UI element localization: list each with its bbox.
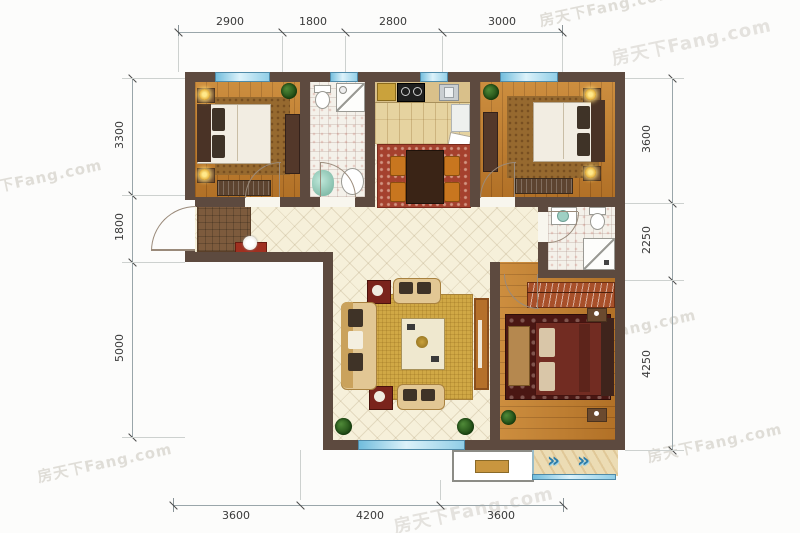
bed-headboard <box>591 100 605 162</box>
floorplan-image: 房天下Fang.com 房天下Fang.com 房天下Fang.com 房天下F… <box>0 0 800 533</box>
pillow <box>539 328 555 357</box>
witness-line <box>625 203 684 204</box>
dim-label-bottom-2: 4200 <box>350 510 390 522</box>
ac-unit <box>475 460 509 473</box>
wall-left-upper <box>185 72 195 200</box>
nightstand-decor <box>594 311 599 316</box>
dim-label-left-1: 3300 <box>114 115 126 155</box>
wall-bed1-bottom-b <box>280 197 300 207</box>
window-bedroom2 <box>500 72 558 82</box>
watermark: 房天下Fang.com <box>0 154 104 203</box>
pillow <box>539 362 555 391</box>
witness-line <box>345 36 346 72</box>
bathroom1-door-leaf <box>320 162 321 197</box>
armchair-cushion <box>417 282 431 294</box>
wardrobe <box>527 282 615 308</box>
bathroom2-door-gap <box>538 212 548 242</box>
dimension-line <box>672 78 673 450</box>
wall-right <box>615 72 625 450</box>
pillow <box>577 106 590 129</box>
side-table-decor <box>374 391 385 402</box>
wall-kitchen-bed2 <box>470 82 480 207</box>
bathroom2-door-leaf <box>548 211 578 212</box>
dim-label-right-3: 4250 <box>641 344 653 384</box>
shower-drain <box>604 260 609 265</box>
watermark: 房天下Fang.com <box>391 479 556 533</box>
dining-chair <box>444 156 460 176</box>
coffee-table-decor <box>416 336 428 348</box>
plant-icon <box>457 418 474 435</box>
watermark: 房天下Fang.com <box>609 11 774 70</box>
burner <box>401 87 410 96</box>
wall-bath1-kitchen <box>365 82 375 207</box>
plant-icon <box>501 410 516 425</box>
bedroom2-door-gap <box>480 197 515 207</box>
flower-decor <box>243 236 257 250</box>
witness-line <box>562 36 563 72</box>
dim-label-top-2: 1800 <box>293 16 333 28</box>
blanket-fold <box>579 324 590 392</box>
table-item <box>431 356 439 362</box>
dim-label-left-3: 5000 <box>114 328 126 368</box>
dimension-line <box>178 32 562 33</box>
dim-label-right-2: 2250 <box>641 220 653 260</box>
witness-line <box>122 437 185 438</box>
bedroom1-door-leaf <box>279 162 280 197</box>
shower-head <box>339 86 347 94</box>
lamp-icon <box>585 89 596 100</box>
lounge-chevron-icon: » <box>577 450 590 470</box>
window-bathroom1 <box>330 72 358 82</box>
armchair-cushion <box>399 282 413 294</box>
witness-line <box>282 36 283 72</box>
pillow <box>212 108 225 131</box>
plant-icon <box>281 83 297 99</box>
floor-plan: » » <box>185 72 625 450</box>
sofa-cushion <box>348 353 363 371</box>
wall-bath2-left-b <box>538 242 548 270</box>
fridge-icon <box>451 104 470 132</box>
wall-living-left <box>323 252 333 450</box>
witness-line <box>178 36 179 72</box>
toilet-icon <box>590 213 605 230</box>
witness-line <box>625 78 684 79</box>
dim-label-top-1: 2900 <box>210 16 250 28</box>
pillow <box>212 135 225 158</box>
wall-bed1-bath1 <box>300 82 310 207</box>
bedroom2-door-leaf <box>514 162 515 197</box>
sofa-cushion <box>348 309 363 327</box>
witness-line <box>625 450 684 451</box>
duvet-fold <box>237 105 238 161</box>
master-door-leaf <box>537 274 538 308</box>
watermark: 房天下Fang.com <box>35 438 174 487</box>
wall-bath1-bottom-b <box>355 197 365 207</box>
cabinet <box>515 178 573 194</box>
dim-label-left-2: 1800 <box>114 207 126 247</box>
dimension-line <box>173 505 563 506</box>
window-bedroom1 <box>215 72 270 82</box>
side-table-decor <box>372 285 383 296</box>
wall-bath2-bottom <box>538 270 625 278</box>
wall-bath1-bottom-a <box>310 197 320 207</box>
bathroom1-door-gap <box>320 197 355 207</box>
lounge-chevron-icon: » <box>547 450 560 470</box>
window-living <box>358 440 465 450</box>
toilet-icon <box>315 91 330 109</box>
wall-entry-bottom <box>185 252 333 262</box>
balcony-floor <box>532 450 618 476</box>
witness-line <box>122 195 185 196</box>
table-item <box>407 324 415 330</box>
dining-chair <box>444 182 460 202</box>
entry-door-arc <box>151 206 196 251</box>
armchair-cushion <box>421 389 435 401</box>
bed-headboard <box>197 104 211 162</box>
dim-label-top-3: 2800 <box>373 16 413 28</box>
dresser <box>483 112 498 172</box>
lamp-icon <box>585 167 596 178</box>
balcony-window <box>532 474 616 480</box>
wall-bed1-bottom-a <box>195 197 245 207</box>
entry-door-leaf <box>151 249 195 251</box>
bed-headboard <box>601 318 614 396</box>
witness-line <box>625 280 684 281</box>
plant-icon <box>483 84 499 100</box>
cabinet <box>285 114 300 174</box>
witness-line <box>122 262 185 263</box>
armchair-cushion <box>403 389 417 401</box>
witness-line <box>440 480 441 500</box>
counter-item <box>377 83 396 101</box>
lamp-icon <box>199 169 210 180</box>
dim-label-right-1: 3600 <box>641 119 653 159</box>
outside-area <box>185 262 323 450</box>
dining-chair <box>390 182 406 202</box>
sofa-cushion <box>348 331 363 349</box>
dining-table <box>406 150 444 204</box>
plant-icon <box>335 418 352 435</box>
duvet-fold <box>563 103 564 159</box>
witness-line <box>442 36 443 72</box>
dining-chair <box>390 156 406 176</box>
wall-bath2-left-a <box>538 197 548 212</box>
nightstand-decor <box>594 411 599 416</box>
lamp-icon <box>199 89 210 100</box>
dimension-line <box>132 78 133 437</box>
burner <box>413 87 422 96</box>
witness-line <box>122 78 185 79</box>
watermark: 房天下Fang.com <box>537 0 676 31</box>
bench <box>508 326 530 386</box>
dim-label-top-4: 3000 <box>482 16 522 28</box>
watermark: 房天下Fang.com <box>645 418 784 467</box>
wall-living-master <box>490 262 500 450</box>
window-kitchen <box>420 72 448 82</box>
wardrobe-rod <box>527 292 613 293</box>
bedroom1-door-gap <box>245 197 280 207</box>
dim-label-bottom-3: 3600 <box>481 510 521 522</box>
tv-icon <box>478 320 482 368</box>
dim-label-bottom-1: 3600 <box>216 510 256 522</box>
shower-icon <box>583 238 615 270</box>
wall-bed2-bottom <box>515 197 625 207</box>
pillow <box>577 133 590 156</box>
sink-basin <box>444 87 454 98</box>
